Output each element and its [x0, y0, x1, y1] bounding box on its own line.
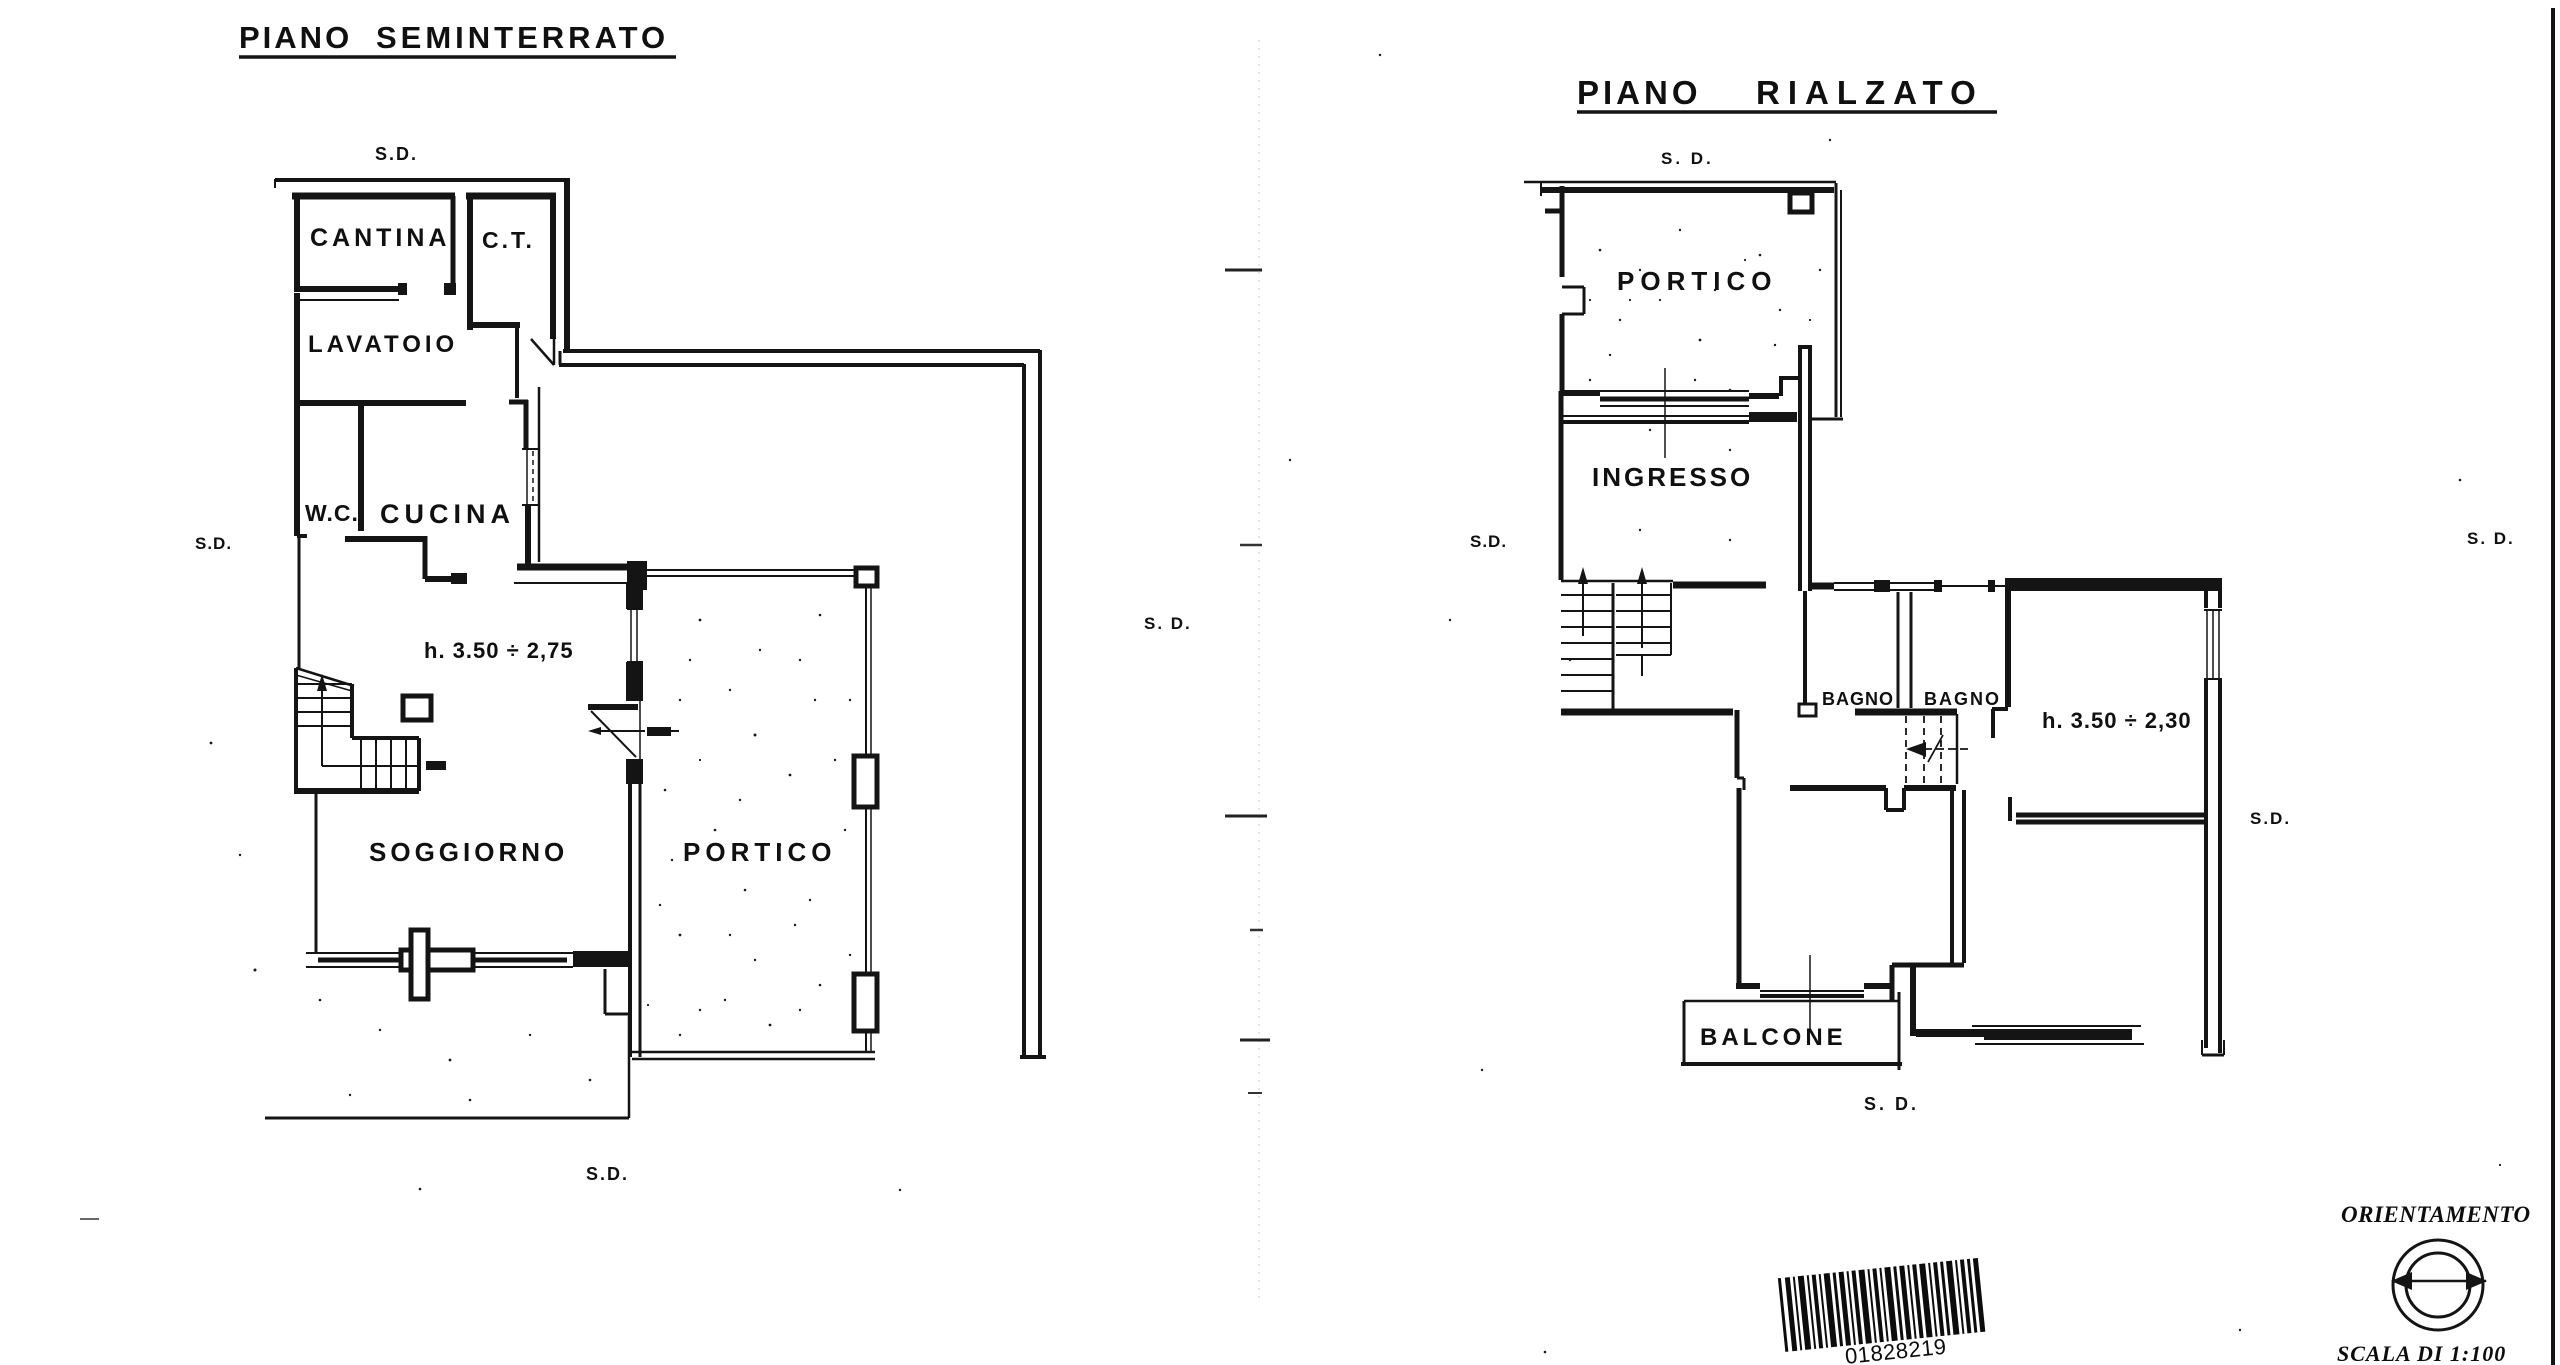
- svg-text:RIALZATO: RIALZATO: [1756, 74, 1984, 111]
- svg-text:S.D.: S.D.: [2250, 809, 2291, 828]
- svg-text:CANTINA: CANTINA: [310, 224, 451, 252]
- svg-text:C.T.: C.T.: [482, 227, 535, 253]
- svg-text:S. D.: S. D.: [1661, 149, 1714, 168]
- svg-text:SEMINTERRATO: SEMINTERRATO: [376, 20, 669, 55]
- svg-text:W.C.: W.C.: [305, 500, 359, 526]
- svg-text:BALCONE: BALCONE: [1700, 1024, 1847, 1051]
- svg-text:BAGNO: BAGNO: [1924, 689, 2001, 709]
- svg-text:h. 3.50 ÷ 2,30: h. 3.50 ÷ 2,30: [2042, 708, 2192, 733]
- svg-text:INGRESSO: INGRESSO: [1592, 462, 1753, 492]
- svg-text:h. 3.50 ÷ 2,75: h. 3.50 ÷ 2,75: [424, 638, 574, 663]
- svg-text:PIANO: PIANO: [239, 20, 352, 55]
- svg-text:CUCINA: CUCINA: [380, 499, 515, 529]
- svg-text:SCALA DI 1:100: SCALA DI 1:100: [2337, 1341, 2506, 1365]
- svg-text:ORIENTAMENTO: ORIENTAMENTO: [2341, 1202, 2531, 1227]
- svg-text:S. D.: S. D.: [1144, 614, 1192, 633]
- svg-text:BAGNO: BAGNO: [1822, 689, 1894, 709]
- svg-text:PORTICO: PORTICO: [683, 837, 836, 867]
- svg-text:SOGGIORNO: SOGGIORNO: [369, 837, 568, 867]
- svg-text:S. D.: S. D.: [1864, 1094, 1919, 1114]
- svg-text:S.D.: S.D.: [586, 1164, 629, 1184]
- svg-text:S. D.: S. D.: [2467, 529, 2515, 548]
- svg-text:S.D.: S.D.: [1470, 532, 1507, 551]
- svg-text:S.D.: S.D.: [195, 534, 232, 553]
- svg-text:S.D.: S.D.: [375, 144, 418, 164]
- svg-text:PORTICO: PORTICO: [1617, 266, 1777, 296]
- svg-text:LAVATOIO: LAVATOIO: [308, 331, 458, 358]
- svg-text:PIANO: PIANO: [1577, 74, 1702, 111]
